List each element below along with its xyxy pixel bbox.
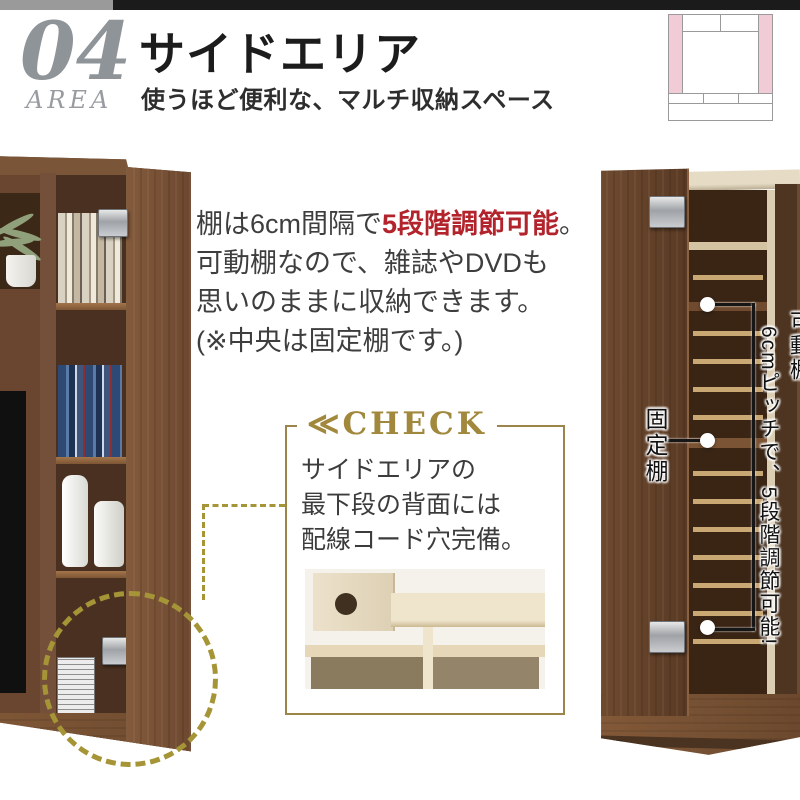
- cabinet-top-panel: [0, 153, 132, 175]
- hinge-highlight-circle: [42, 591, 218, 767]
- plant-pot: [6, 255, 36, 287]
- cable-hole: [335, 593, 357, 615]
- section-number: 04: [20, 4, 131, 98]
- lower-compartment: [311, 657, 423, 689]
- fixed-shelf-label: 固定棚: [638, 407, 672, 485]
- check-text: サイドエリアの 最下段の背面には 配線コード穴完備。: [301, 453, 526, 558]
- lower-compartment: [433, 657, 539, 689]
- movable-shelf-label: 可動棚 6cmピッチで、5段階調節可能!: [753, 310, 800, 710]
- movable-shelf-label-detail: 6cmピッチで、5段階調節可能!: [753, 326, 783, 710]
- paragraph-text: 。: [559, 209, 586, 239]
- pointer-dot-fixed: [700, 433, 715, 448]
- upper-shelf: [689, 242, 767, 250]
- dashed-connector-vertical: [202, 504, 205, 600]
- diagram-top-cell-b: [720, 14, 759, 32]
- shelf-board: [56, 571, 126, 578]
- back-panel: [313, 573, 395, 631]
- back-crossbar: [391, 593, 545, 627]
- check-title: ≪CHECK: [297, 406, 497, 442]
- diagram-top-cell-a: [682, 14, 721, 32]
- cable-hole-photo: [305, 569, 545, 689]
- shelf-board: [56, 457, 126, 464]
- door-hinge-top: [649, 196, 685, 228]
- paragraph-text: 可動棚なので、雑誌やDVDも: [196, 248, 549, 278]
- door-hinge-top: [98, 209, 128, 237]
- feature-paragraph: 棚は6cm間隔で5段階調節可能。 可動棚なので、雑誌やDVDも 思いのままに収納…: [196, 205, 606, 361]
- diagram-base-cell: [668, 103, 773, 121]
- paragraph-text: 棚は6cm間隔で: [196, 209, 382, 239]
- white-vase-short: [94, 501, 124, 567]
- dvd-spines: [58, 365, 122, 457]
- diagram-left-side-area: [668, 14, 683, 94]
- top-bar-black-segment: [113, 0, 800, 10]
- dashed-connector-horizontal: [203, 504, 285, 507]
- white-vase-tall: [62, 475, 88, 567]
- shelf-board: [56, 303, 126, 310]
- compartment-divider: [423, 627, 433, 689]
- diagram-right-side-area: [758, 14, 773, 94]
- pointer-dot-top: [700, 297, 715, 312]
- check-line: サイドエリアの: [301, 456, 476, 484]
- floorplan-diagram-icon: [668, 14, 773, 121]
- paragraph-text: (※中央は固定棚です。): [196, 326, 463, 356]
- section-area-label: AREA: [26, 86, 112, 114]
- highlighted-text: 5段階調節可能: [382, 209, 559, 239]
- check-line: 配線コード穴完備。: [301, 526, 526, 554]
- pointer-dot-bottom: [700, 620, 715, 635]
- cabinet-leg: [605, 740, 623, 754]
- paragraph-text: 思いのままに収納できます。: [196, 287, 544, 317]
- page-title: サイドエリア: [139, 18, 421, 84]
- check-callout-box: ≪CHECK サイドエリアの 最下段の背面には 配線コード穴完備。: [285, 425, 565, 715]
- check-line: 最下段の背面には: [301, 491, 501, 519]
- door-hinge-bottom: [649, 621, 685, 653]
- tv-edge: [0, 391, 26, 693]
- diagram-tv-space: [682, 31, 759, 94]
- page-subtitle: 使うほど便利な、マルチ収納スペース: [141, 80, 555, 115]
- movable-shelf-label-title: 可動棚: [787, 310, 800, 382]
